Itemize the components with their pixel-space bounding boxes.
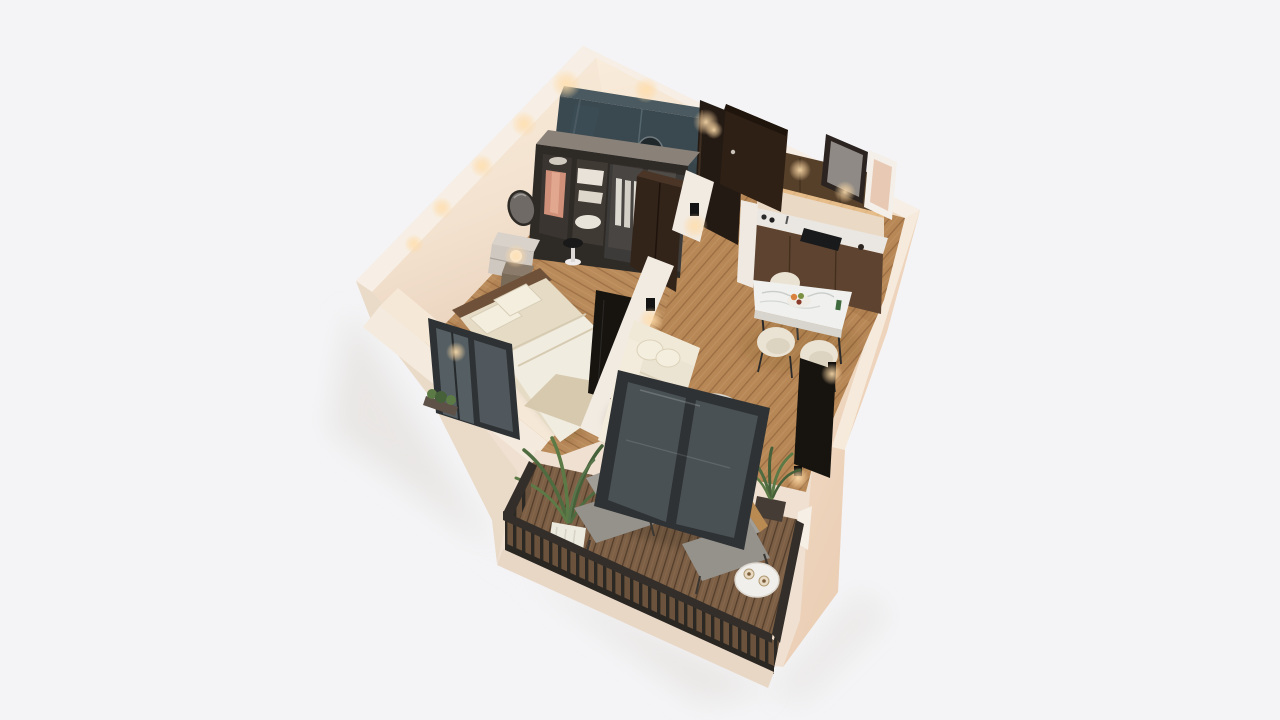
vase	[858, 244, 864, 250]
sconce-glow	[821, 363, 843, 385]
sconce-glow	[682, 213, 708, 239]
ceiling-spot-glow	[789, 159, 811, 181]
bottle	[761, 214, 766, 219]
duvet-roll	[575, 215, 601, 229]
hat-box	[549, 157, 567, 165]
balcony-side-table	[735, 563, 779, 597]
bottle	[769, 217, 774, 222]
wall-lamp-glow	[446, 342, 466, 362]
ceiling-spot-glow	[431, 197, 453, 219]
linen-stack	[577, 168, 604, 186]
fruit-green	[798, 293, 804, 299]
floor-plan-canvas	[0, 0, 1280, 720]
ceiling-spot-glow	[470, 154, 494, 178]
stool-seat	[563, 238, 583, 248]
ceiling-spot-glow	[511, 111, 537, 137]
lamp-glow	[504, 244, 528, 268]
stool-stem	[571, 246, 575, 262]
leaning-frame-inner	[870, 159, 892, 211]
ceiling-spot-glow	[705, 121, 723, 139]
fruit-orange	[791, 294, 797, 300]
cup-coffee	[747, 572, 751, 576]
sofa-pillow	[656, 349, 680, 367]
cup-coffee	[762, 579, 766, 583]
fruit-red	[796, 299, 801, 304]
planter-leaf	[435, 391, 447, 403]
chair-seat	[766, 338, 790, 354]
ceiling-spot-glow	[551, 69, 581, 99]
floor-plan-render	[0, 0, 1280, 720]
planter-leaf	[446, 395, 456, 405]
ceiling-spot-glow	[404, 234, 424, 254]
door-handle	[731, 150, 735, 154]
ceiling-spot-glow	[834, 181, 856, 203]
ceiling-spot-glow	[633, 77, 659, 103]
